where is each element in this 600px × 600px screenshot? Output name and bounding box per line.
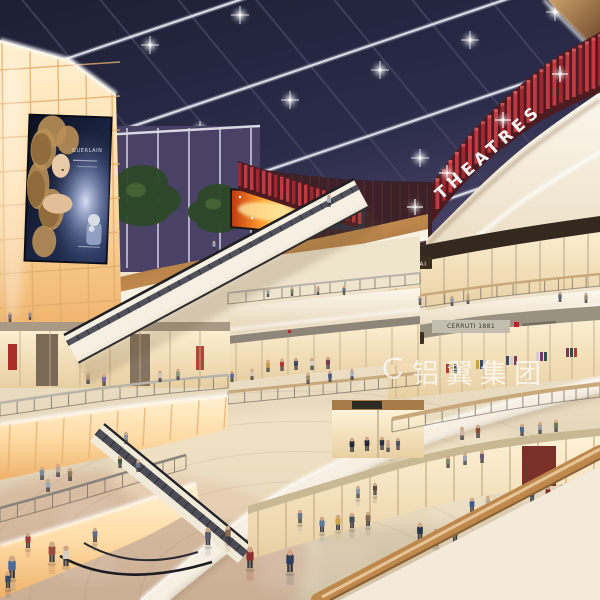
cerruti-sign: CERRUTI 1881: [447, 323, 495, 330]
watermark-text: 铝翼集团: [412, 359, 548, 390]
scene-canvas: THEATRES TAI TAI TAI TAICERRUTI 1881 GUE…: [0, 0, 600, 600]
menswear-store: [332, 400, 424, 458]
perfume-billboard: GUERLAIN: [24, 115, 111, 264]
mall-atrium-rendering: THEATRES TAI TAI TAI TAICERRUTI 1881 GUE…: [0, 0, 600, 600]
billboard-brand: GUERLAIN: [72, 148, 103, 154]
